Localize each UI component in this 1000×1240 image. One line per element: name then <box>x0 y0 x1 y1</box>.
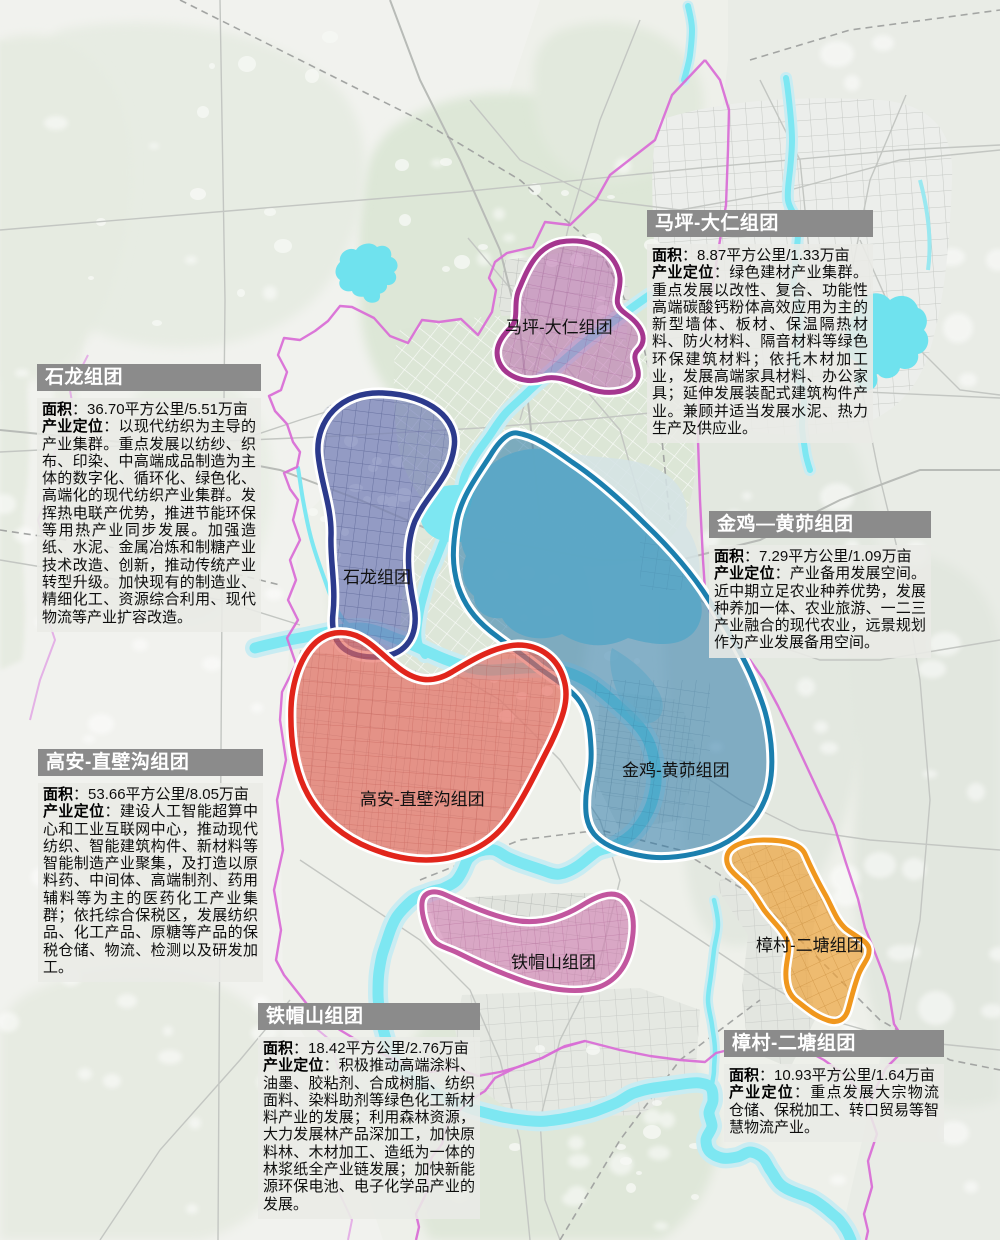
svg-text:金鸡-黄茆组团: 金鸡-黄茆组团 <box>622 761 730 780</box>
svg-text:马坪-大仁组团: 马坪-大仁组团 <box>505 318 613 337</box>
svg-text:铁帽山组团: 铁帽山组团 <box>511 953 596 972</box>
svg-text:高安-直壁沟组团: 高安-直壁沟组团 <box>360 790 485 809</box>
svg-text:石龙组团: 石龙组团 <box>343 568 411 587</box>
svg-text:樟村-二塘组团: 樟村-二塘组团 <box>756 936 864 955</box>
